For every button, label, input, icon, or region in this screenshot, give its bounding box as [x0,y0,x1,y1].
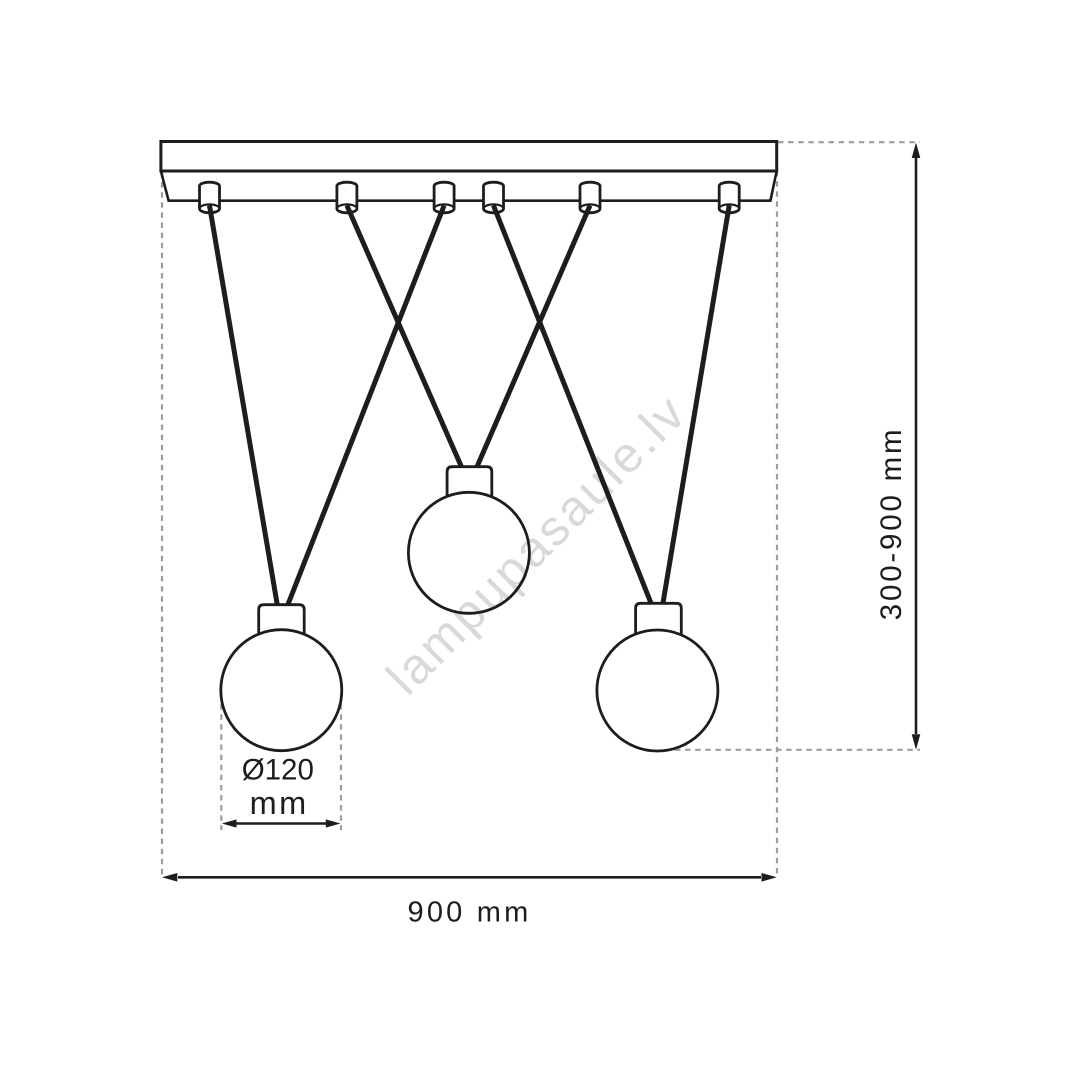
svg-text:mm: mm [250,785,309,821]
svg-text:900 mm: 900 mm [408,897,532,929]
svg-text:Ø120: Ø120 [242,753,314,786]
svg-text:300-900 mm: 300-900 mm [875,427,908,621]
